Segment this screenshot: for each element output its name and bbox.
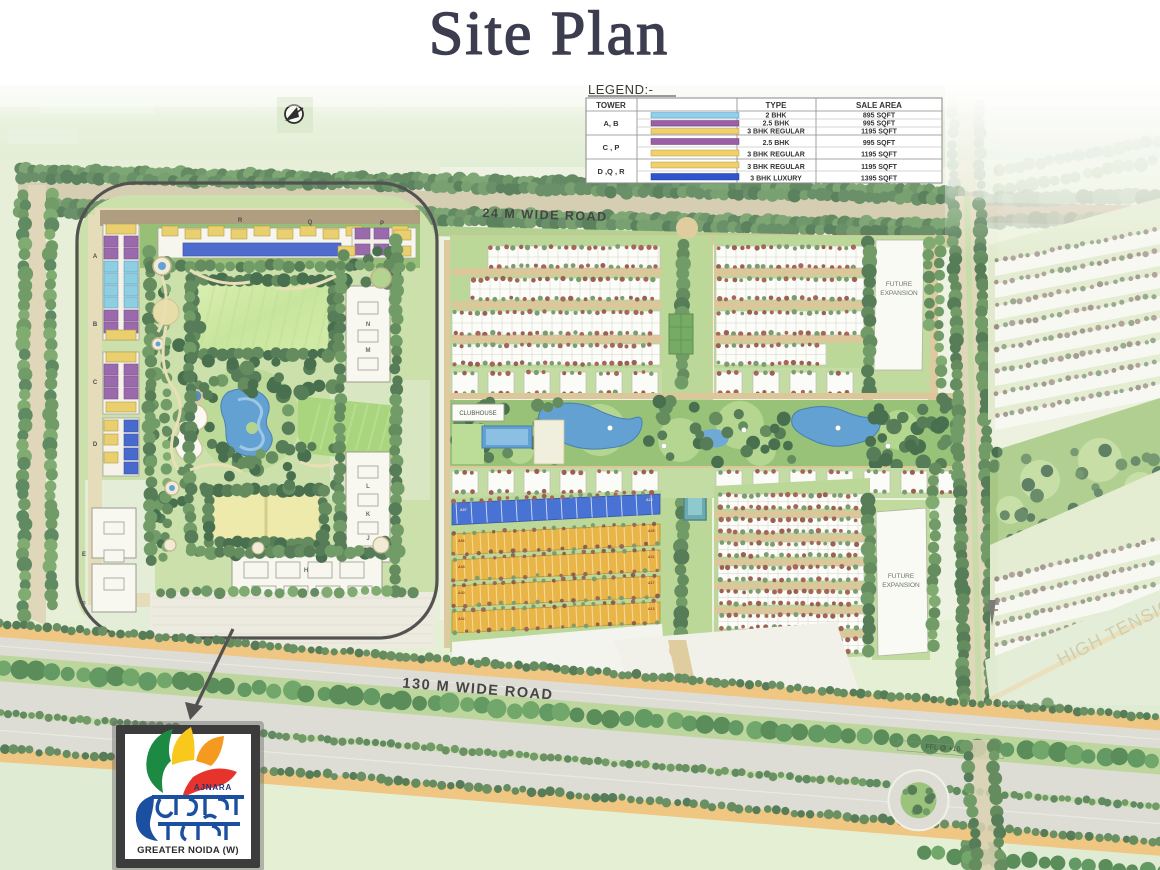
svg-text:TYPE: TYPE xyxy=(766,101,788,110)
svg-text:2.5 BHK: 2.5 BHK xyxy=(763,121,790,128)
svg-text:1395 SQFT: 1395 SQFT xyxy=(861,176,898,183)
svg-text:1195 SQFT: 1195 SQFT xyxy=(861,152,898,159)
svg-text:GREATER NOIDA (W): GREATER NOIDA (W) xyxy=(137,845,239,856)
svg-text:3 BHK REGULAR: 3 BHK REGULAR xyxy=(747,164,805,171)
svg-text:895 SQFT: 895 SQFT xyxy=(863,113,896,120)
svg-text:995 SQFT: 995 SQFT xyxy=(863,121,896,128)
svg-text:D ,Q , R: D ,Q , R xyxy=(597,167,625,176)
svg-text:2 BHK: 2 BHK xyxy=(765,113,786,120)
svg-text:SALE AREA: SALE AREA xyxy=(856,101,902,110)
svg-text:AJNARA: AJNARA xyxy=(194,783,232,792)
svg-text:3 BHK REGULAR: 3 BHK REGULAR xyxy=(747,129,805,136)
svg-text:Site Plan: Site Plan xyxy=(429,0,669,68)
svg-text:1195 SQFT: 1195 SQFT xyxy=(861,129,898,136)
svg-text:995 SQFT: 995 SQFT xyxy=(863,140,896,147)
svg-text:C , P: C , P xyxy=(603,143,620,152)
svg-text:3 BHK LUXURY: 3 BHK LUXURY xyxy=(750,176,802,183)
svg-text:A, B: A, B xyxy=(604,119,620,128)
svg-text:3 BHK REGULAR: 3 BHK REGULAR xyxy=(747,152,805,159)
svg-text:LEGEND:-: LEGEND:- xyxy=(588,82,653,97)
svg-text:2.5 BHK: 2.5 BHK xyxy=(763,140,790,147)
svg-text:TOWER: TOWER xyxy=(596,101,626,110)
svg-text:1195 SQFT: 1195 SQFT xyxy=(861,164,898,171)
